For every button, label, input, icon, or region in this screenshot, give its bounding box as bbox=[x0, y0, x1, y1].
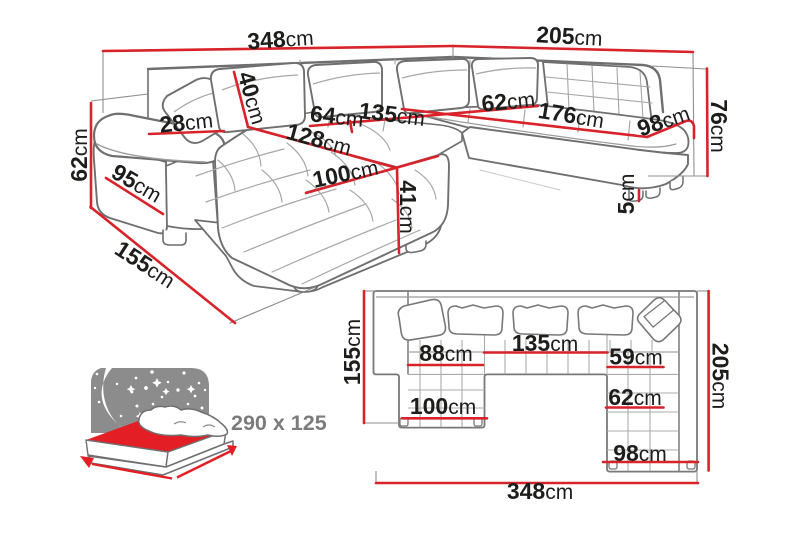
svg-text:205cm: 205cm bbox=[536, 21, 604, 50]
svg-text:62cm: 62cm bbox=[480, 85, 536, 116]
svg-text:155cm: 155cm bbox=[339, 319, 365, 385]
svg-text:62cm: 62cm bbox=[66, 128, 92, 182]
svg-text:76cm: 76cm bbox=[706, 99, 732, 153]
svg-text:348cm: 348cm bbox=[507, 478, 573, 504]
svg-text:135cm: 135cm bbox=[512, 330, 578, 356]
svg-text:290 x 125: 290 x 125 bbox=[231, 411, 327, 435]
svg-text:98cm: 98cm bbox=[613, 440, 667, 466]
svg-text:88cm: 88cm bbox=[419, 340, 473, 366]
svg-text:348cm: 348cm bbox=[246, 24, 314, 55]
svg-text:205cm: 205cm bbox=[708, 343, 734, 409]
svg-text:100cm: 100cm bbox=[410, 393, 476, 419]
svg-text:28cm: 28cm bbox=[158, 106, 214, 137]
svg-text:41cm: 41cm bbox=[395, 180, 421, 234]
svg-text:5cm: 5cm bbox=[613, 174, 639, 215]
svg-text:59cm: 59cm bbox=[609, 344, 663, 370]
svg-text:62cm: 62cm bbox=[608, 384, 662, 410]
